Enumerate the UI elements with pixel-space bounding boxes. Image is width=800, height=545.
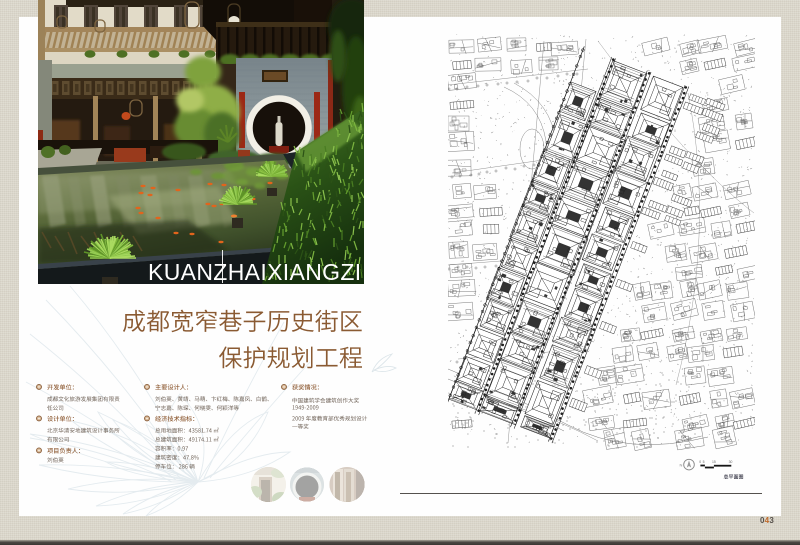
svg-text:15: 15 [712,460,716,464]
svg-text:30: 30 [729,460,733,464]
svg-text:N: N [680,463,683,468]
svg-text:5: 5 [703,460,705,464]
svg-text:0: 0 [699,460,701,464]
